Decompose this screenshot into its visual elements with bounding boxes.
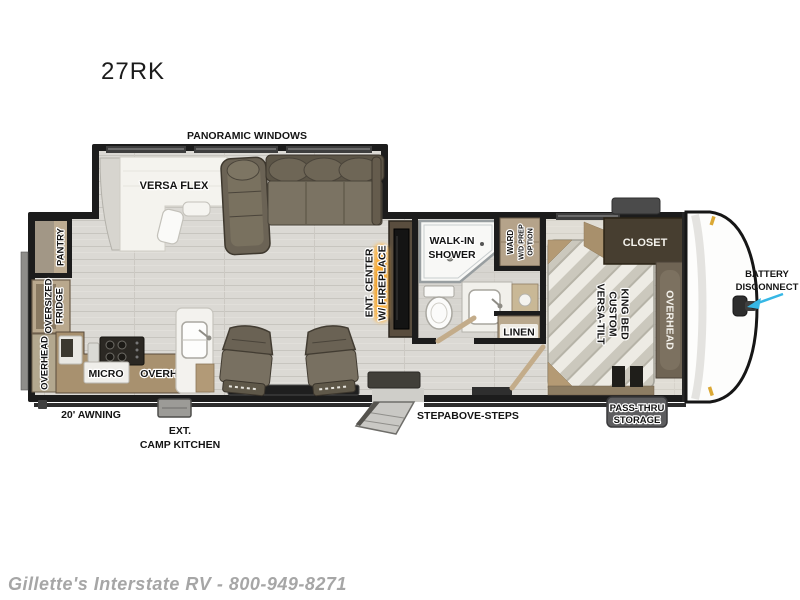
fridge-label-2: FRIDGE	[55, 288, 66, 324]
overhead-cabinet-rear: OVERHEAD	[32, 334, 56, 392]
ext-label: EXT.	[169, 425, 191, 437]
rear-bumper	[21, 252, 28, 390]
overhead-rear-label: OVERHEAD	[40, 336, 51, 390]
pantry-label: PANTRY	[56, 227, 67, 266]
window-bottom-hall	[472, 387, 512, 395]
sofa-seat	[268, 181, 382, 225]
oversized-fridge: OVERSIZED FRIDGE	[32, 278, 70, 333]
micro-label: MICRO	[89, 368, 124, 380]
wall-linen-top	[494, 311, 546, 316]
stool	[183, 202, 210, 216]
wall-ward-bottom	[494, 266, 546, 271]
overhead-cabinet-bedroom: OVERHEAD	[656, 262, 684, 378]
battery-label: BATTERY	[745, 269, 789, 280]
awning-label: 20' AWNING	[61, 409, 121, 421]
toilet	[424, 286, 454, 329]
wall-bath-bottom-b	[474, 338, 546, 344]
linen-label: LINEN	[503, 327, 535, 339]
fridge-label-1: OVERSIZED	[44, 278, 55, 333]
bed-label-3: KING BED	[619, 288, 631, 340]
pass-thru-storage-badge: PASS-THRU STORAGE	[607, 397, 667, 427]
wall-bath-bottom-a	[412, 338, 436, 344]
awning-bracket	[38, 400, 47, 409]
ent-center-label: ENT. CENTER	[364, 248, 376, 317]
stepabove-steps-label: STEPABOVE-STEPS	[417, 410, 519, 422]
pantry: PANTRY	[30, 216, 72, 278]
shower-label-1: WALK-IN	[430, 235, 475, 247]
wall-bath-left	[412, 216, 418, 344]
shower-label-2: SHOWER	[428, 249, 476, 261]
pass-thru-label-2: STORAGE	[614, 415, 661, 426]
entry-mat	[368, 372, 420, 388]
ward-label-3: OPTION	[526, 228, 535, 256]
stove-tray	[88, 343, 99, 362]
versa-flex-label: VERSA FLEX	[140, 180, 209, 192]
bed-label-1: VERSA-TILT	[595, 283, 607, 345]
bed-label-2: CUSTOM	[607, 291, 619, 337]
bed-storage-box-1	[612, 366, 625, 387]
sofa-armrest	[372, 157, 381, 225]
floorplan-drawing: PANTRY OVERSIZED FRIDGE OVERHEAD MICRO O…	[0, 0, 800, 600]
awning-rail-left	[34, 403, 372, 407]
kitchen-sink-peninsula	[176, 308, 214, 393]
sofa-chaise	[221, 157, 271, 255]
bed-storage-box-2	[630, 366, 643, 387]
closet-label: CLOSET	[623, 237, 668, 249]
bed-footboard	[548, 386, 654, 395]
exterior-camp-kitchen-box	[158, 399, 191, 417]
wall-bedroom	[540, 216, 546, 344]
dealer-watermark: Gillette's Interstate RV - 800-949-8271	[8, 574, 347, 594]
window-band-slideout	[106, 146, 372, 153]
ward-label-2: W/D PREP	[517, 224, 526, 260]
floorplan-page: PANTRY OVERSIZED FRIDGE OVERHEAD MICRO O…	[0, 0, 800, 600]
disconnect-label: DISCONNECT	[736, 282, 799, 293]
roof-accessory	[612, 198, 660, 214]
microwave: MICRO	[84, 362, 129, 383]
kitchen-appliance	[61, 339, 73, 357]
camp-kitchen-label: CAMP KITCHEN	[140, 439, 220, 451]
overhead-bedroom-label: OVERHEAD	[664, 290, 676, 350]
ward-label-1: WARD	[506, 230, 515, 255]
pass-thru-label-1: PASS-THRU	[610, 403, 665, 414]
fireplace-label: W/ FIREPLACE	[377, 245, 389, 320]
wall-shower-ward	[494, 216, 500, 268]
wardrobe-wd-prep: WARD W/D PREP OPTION	[500, 218, 540, 266]
panoramic-windows-label: PANORAMIC WINDOWS	[187, 130, 307, 142]
page-title: 27RK	[101, 58, 165, 85]
peninsula-cabinet	[196, 364, 214, 392]
